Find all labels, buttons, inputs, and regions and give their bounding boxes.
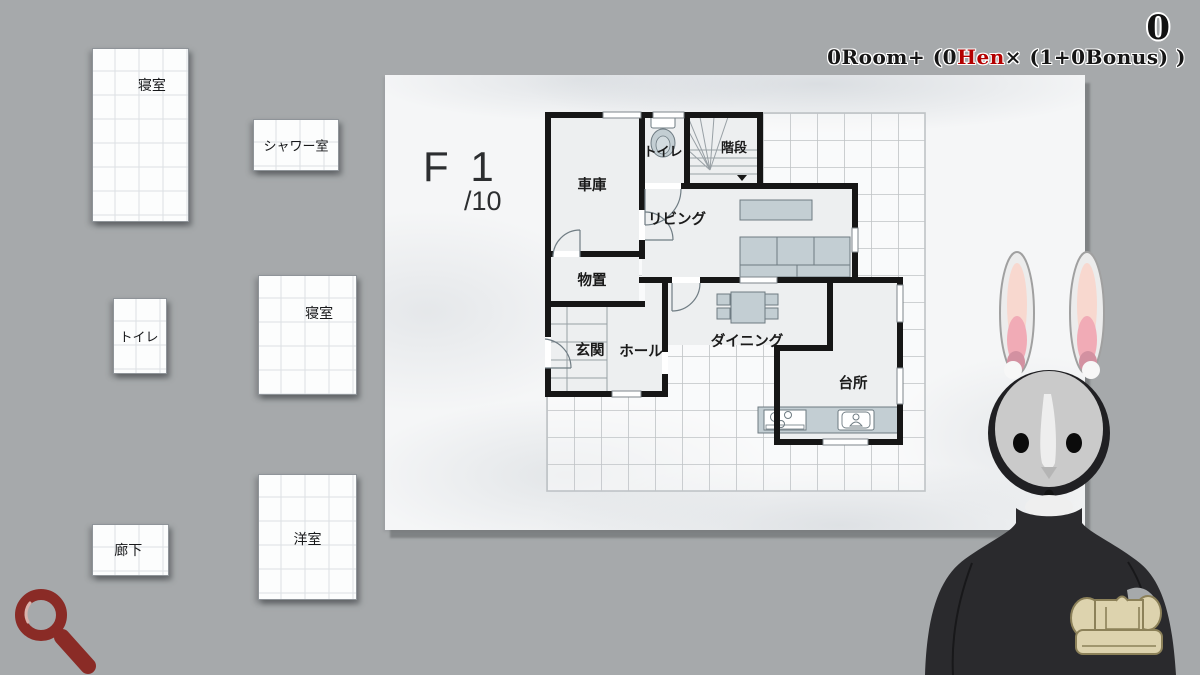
rabbit-ear-left	[1000, 252, 1034, 374]
card-label: 寝室	[138, 75, 166, 95]
room-label-living: リビング	[648, 210, 706, 228]
room-label-storage: 物置	[578, 271, 607, 289]
score-value: 0	[1146, 8, 1170, 48]
card-label: 洋室	[294, 529, 322, 549]
formula-part2: × (1+0Bonus) )	[1005, 45, 1186, 69]
rabbit-eye-right	[1066, 433, 1082, 453]
room-label-stairs: 階段	[721, 140, 747, 155]
card-label: 寝室	[305, 303, 333, 323]
stove-icon	[764, 410, 806, 430]
room-label-entrance: 玄関	[576, 341, 605, 359]
card-western-room[interactable]: 洋室	[258, 474, 357, 600]
card-toilet[interactable]: トイレ	[113, 298, 167, 374]
score-formula: 0Room+ (0Hen× (1+0Bonus) )	[827, 45, 1186, 69]
card-label: トイレ	[119, 327, 158, 346]
dining-table-icon	[731, 292, 765, 323]
window	[852, 228, 858, 252]
rabbit-eye-left	[1013, 433, 1029, 453]
sink-icon	[838, 410, 874, 430]
card-label: シャワー室	[263, 136, 328, 155]
sliding-door	[740, 277, 777, 283]
game-stage: F 1 /10	[0, 0, 1200, 675]
card-corridor[interactable]: 廊下	[92, 524, 169, 576]
magnifier-icon[interactable]	[21, 595, 89, 667]
sofa-icon	[740, 237, 777, 265]
held-sofa-item[interactable]	[1071, 596, 1162, 654]
formula-part1: 0Room+ (0	[827, 45, 957, 69]
formula-hen-highlight: Hen	[957, 45, 1005, 69]
card-bedroom-2[interactable]: 寝室	[258, 275, 357, 395]
rabbit-ear-right	[1070, 252, 1104, 374]
tv-board-icon	[740, 200, 812, 220]
window	[612, 391, 641, 397]
window	[653, 112, 684, 118]
window	[897, 285, 903, 322]
window	[897, 368, 903, 404]
card-bedroom-1[interactable]: 寝室	[92, 48, 189, 222]
card-label: 廊下	[114, 540, 142, 560]
rabbit-character	[925, 252, 1176, 675]
room-label-toilet: トイレ	[643, 144, 682, 159]
sliding-door	[823, 439, 868, 445]
room-label-dining: ダイニング	[711, 332, 784, 350]
room-label-hall: ホール	[619, 343, 663, 360]
card-shower[interactable]: シャワー室	[253, 119, 339, 171]
room-label-kitchen: 台所	[839, 374, 868, 392]
room-label-garage: 車庫	[578, 176, 607, 194]
window	[603, 112, 641, 118]
